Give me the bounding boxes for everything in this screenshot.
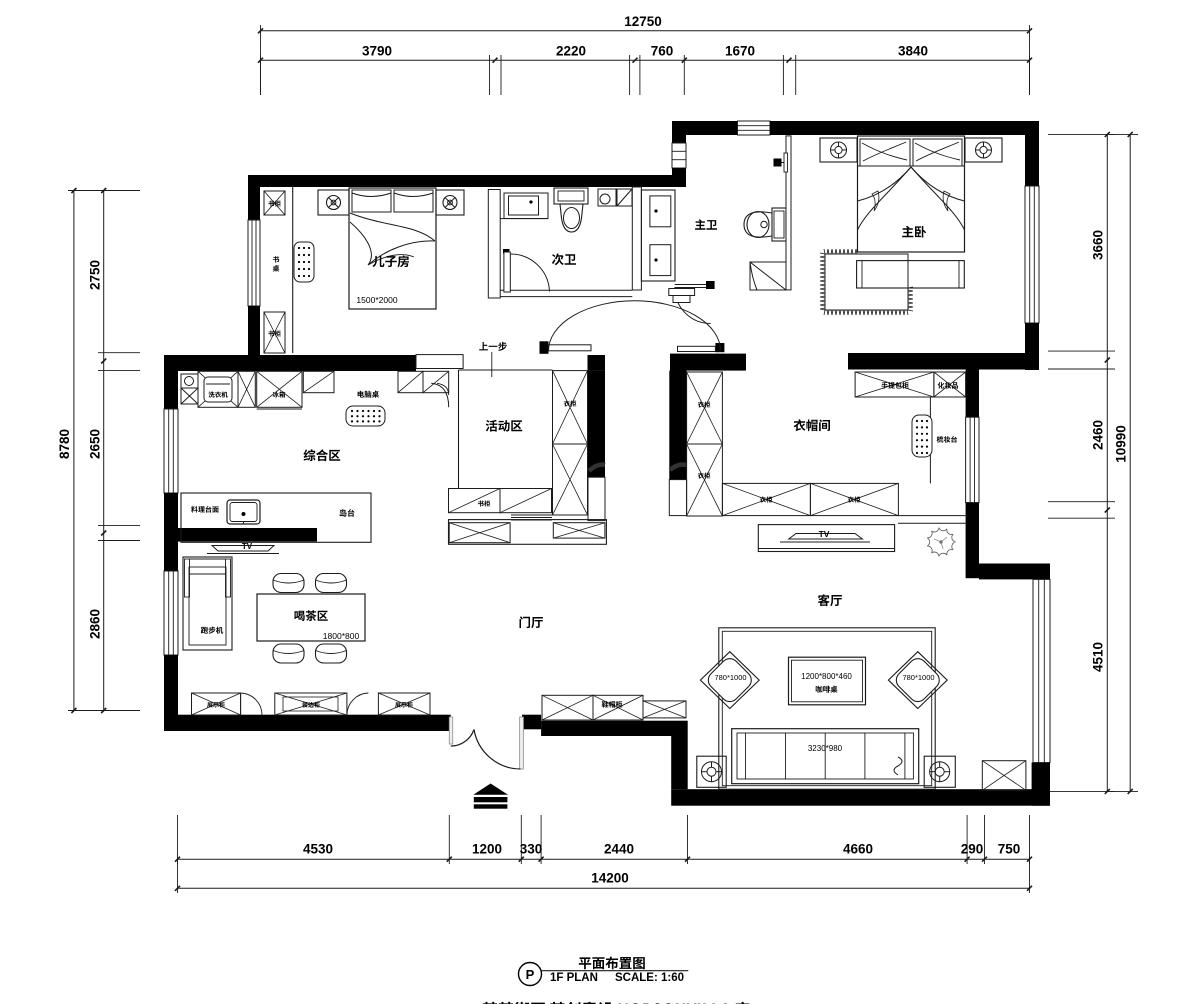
svg-text:8780: 8780 <box>57 429 72 459</box>
svg-text:3790: 3790 <box>362 44 392 59</box>
svg-text:10990: 10990 <box>1114 425 1129 463</box>
svg-text:12750: 12750 <box>624 14 662 29</box>
svg-text:1800*800: 1800*800 <box>323 631 360 641</box>
svg-text:1200: 1200 <box>472 842 502 857</box>
svg-text:TV: TV <box>819 529 830 539</box>
svg-text:2750: 2750 <box>88 260 103 290</box>
svg-text:2860: 2860 <box>88 609 103 639</box>
svg-text:3840: 3840 <box>898 44 928 59</box>
svg-text:290: 290 <box>961 842 984 857</box>
svg-text:2460: 2460 <box>1091 420 1106 450</box>
svg-text:2220: 2220 <box>556 44 586 59</box>
svg-text:4530: 4530 <box>303 842 333 857</box>
svg-text:TV: TV <box>242 542 253 551</box>
svg-text:1F PLAN: 1F PLAN <box>550 972 598 984</box>
svg-text:4660: 4660 <box>843 842 873 857</box>
svg-text:2440: 2440 <box>604 842 634 857</box>
svg-text:750: 750 <box>998 842 1021 857</box>
svg-text:1500*2000: 1500*2000 <box>356 295 397 305</box>
svg-text:1200*800*460: 1200*800*460 <box>801 672 852 681</box>
svg-text:3230*980: 3230*980 <box>808 744 843 753</box>
svg-text:760: 760 <box>651 44 674 59</box>
svg-text:SCALE: 1:60: SCALE: 1:60 <box>615 972 684 984</box>
svg-text:330: 330 <box>520 842 543 857</box>
svg-text:780*1000: 780*1000 <box>902 673 934 682</box>
svg-text:3660: 3660 <box>1091 230 1106 260</box>
svg-text:2650: 2650 <box>88 429 103 459</box>
svg-text:14200: 14200 <box>591 871 629 886</box>
svg-text:4510: 4510 <box>1091 642 1106 672</box>
svg-text:780*1000: 780*1000 <box>714 673 746 682</box>
svg-text:P: P <box>526 967 535 982</box>
svg-text:1670: 1670 <box>725 44 755 59</box>
